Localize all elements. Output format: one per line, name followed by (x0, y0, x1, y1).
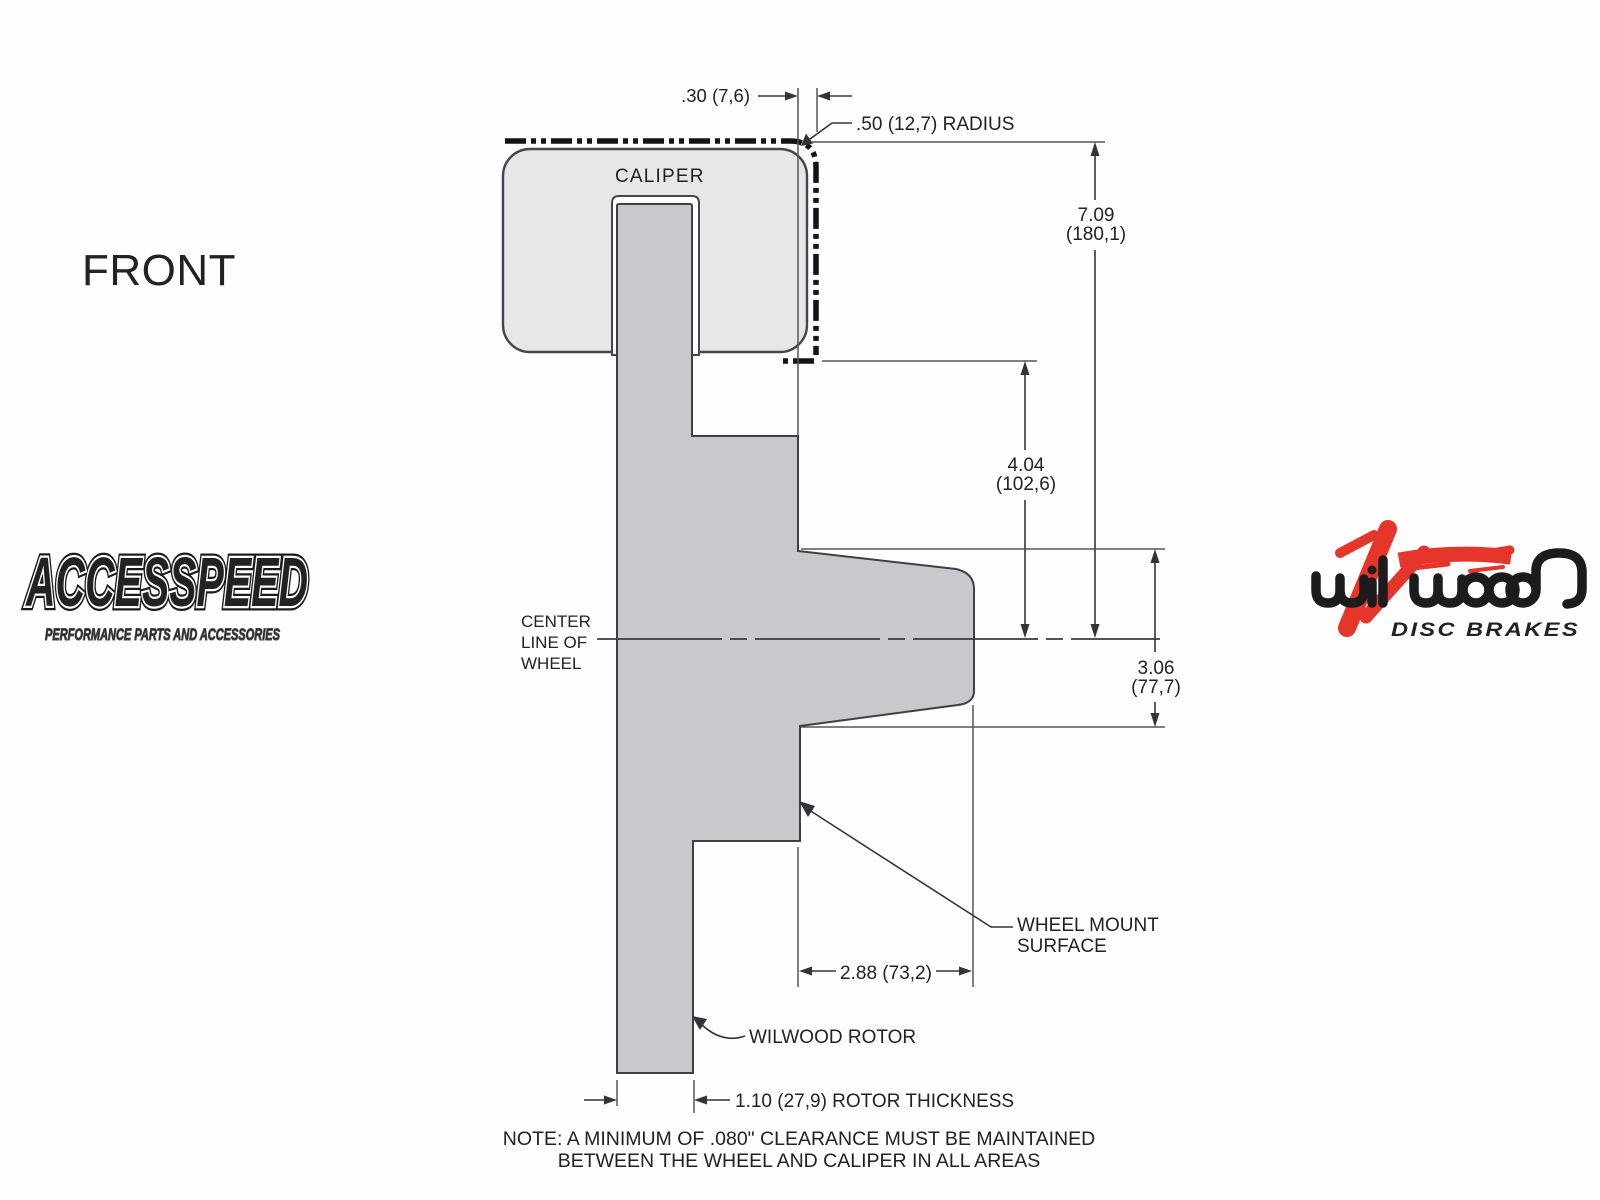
svg-text:ACCESSPEED: ACCESSPEED (25, 543, 308, 621)
svg-text:WHEEL: WHEEL (521, 654, 581, 673)
svg-text:.30 (7,6): .30 (7,6) (681, 85, 750, 106)
svg-text:CALIPER: CALIPER (615, 166, 705, 187)
svg-text:.50 (12,7) RADIUS: .50 (12,7) RADIUS (856, 114, 1014, 135)
svg-text:(102,6): (102,6) (996, 474, 1056, 495)
svg-text:PERFORMANCE PARTS AND ACCESSOR: PERFORMANCE PARTS AND ACCESSORIES (45, 625, 280, 644)
svg-text:BETWEEN THE WHEEL AND CALIPER: BETWEEN THE WHEEL AND CALIPER IN ALL ARE… (558, 1150, 1041, 1172)
svg-text:(180,1): (180,1) (1066, 224, 1126, 245)
svg-text:WILWOOD ROTOR: WILWOOD ROTOR (749, 1027, 916, 1048)
svg-text:1.10 (27,9) ROTOR THICKNESS: 1.10 (27,9) ROTOR THICKNESS (735, 1091, 1014, 1112)
svg-text:CENTER: CENTER (521, 612, 591, 631)
svg-text:2.88 (73,2): 2.88 (73,2) (840, 963, 932, 984)
svg-text:WHEEL MOUNT: WHEEL MOUNT (1017, 915, 1159, 936)
svg-text:DISC BRAKES: DISC BRAKES (1391, 619, 1580, 641)
svg-text:NOTE: A MINIMUM OF .080" CLEAR: NOTE: A MINIMUM OF .080" CLEARANCE MUST … (503, 1128, 1095, 1150)
svg-text:SURFACE: SURFACE (1017, 936, 1107, 957)
svg-text:4.04: 4.04 (1008, 455, 1045, 476)
svg-text:FRONT: FRONT (82, 246, 236, 295)
svg-text:3.06: 3.06 (1138, 658, 1175, 679)
svg-text:7.09: 7.09 (1078, 205, 1115, 226)
svg-text:LINE OF: LINE OF (521, 633, 587, 652)
svg-text:(77,7): (77,7) (1131, 677, 1181, 698)
